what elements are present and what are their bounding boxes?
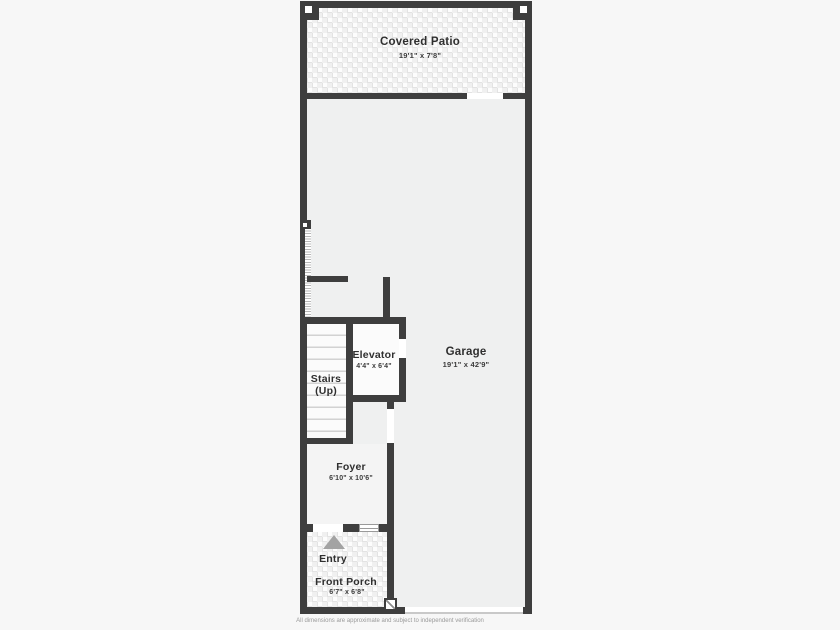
- elevator-door-opening: [399, 339, 406, 358]
- room-label-front-porch: Front Porch: [315, 576, 377, 588]
- post-top-right-icon: [520, 6, 527, 13]
- left-wall-nub-post-icon: [303, 223, 307, 227]
- porch-column-post-icon: [384, 598, 397, 611]
- wall-foyer-bottom-a: [300, 524, 313, 532]
- disclaimer-text: All dimensions are approximate and subje…: [296, 618, 484, 624]
- foyer-garage-door-opening: [387, 409, 394, 443]
- party-wall-hatch: [305, 229, 311, 317]
- wall-foyer-right: [387, 443, 394, 602]
- wall-top: [300, 1, 532, 8]
- entry-direction-triangle-icon: [323, 535, 345, 549]
- wall-stairs-right: [346, 317, 353, 444]
- room-dimensions-garage: 19'1" x 42'9": [443, 360, 490, 369]
- post-top-left-icon: [305, 6, 312, 13]
- foyer-floor: [307, 444, 387, 524]
- room-dimensions-elevator: 4'4" x 6'4": [356, 363, 392, 370]
- window-icon: [359, 524, 379, 532]
- patio-door-opening: [467, 93, 503, 99]
- entry-door-opening: [313, 524, 343, 532]
- wall-stairs-bottom: [300, 438, 353, 444]
- room-dimensions-foyer: 6'10" x 10'6": [329, 475, 373, 482]
- interior-wall-stub-horizontal: [307, 276, 348, 282]
- floor-plan-canvas: Covered Patio 19'1" x 7'8" Garage 19'1" …: [0, 0, 840, 630]
- wall-patio-bottom-a: [300, 93, 467, 99]
- room-dimensions-front-porch: 6'7" x 6'8": [329, 589, 365, 596]
- wall-elevator-right-upper: [399, 317, 406, 339]
- interior-wall-stub-vertical: [383, 277, 390, 317]
- wall-under-elevator-stub: [387, 402, 394, 409]
- room-dimensions-covered-patio: 19'1" x 7'8": [399, 51, 441, 60]
- wall-bottom-right-corner: [523, 607, 532, 614]
- room-label-stairs-direction: (Up): [315, 385, 337, 397]
- wall-patio-bottom-b: [503, 93, 532, 99]
- wall-stair-block-top: [300, 317, 406, 324]
- room-label-elevator: Elevator: [352, 349, 395, 361]
- wall-foyer-bottom-b: [343, 524, 359, 532]
- wall-foyer-bottom-c: [379, 524, 394, 532]
- room-label-entry: Entry: [319, 553, 347, 565]
- room-label-covered-patio: Covered Patio: [380, 36, 460, 48]
- garage-door-opening: [405, 607, 523, 614]
- wall-elevator-bottom: [346, 395, 406, 402]
- room-label-stairs: Stairs: [311, 373, 341, 385]
- room-label-garage: Garage: [446, 346, 487, 358]
- room-label-foyer: Foyer: [336, 461, 366, 473]
